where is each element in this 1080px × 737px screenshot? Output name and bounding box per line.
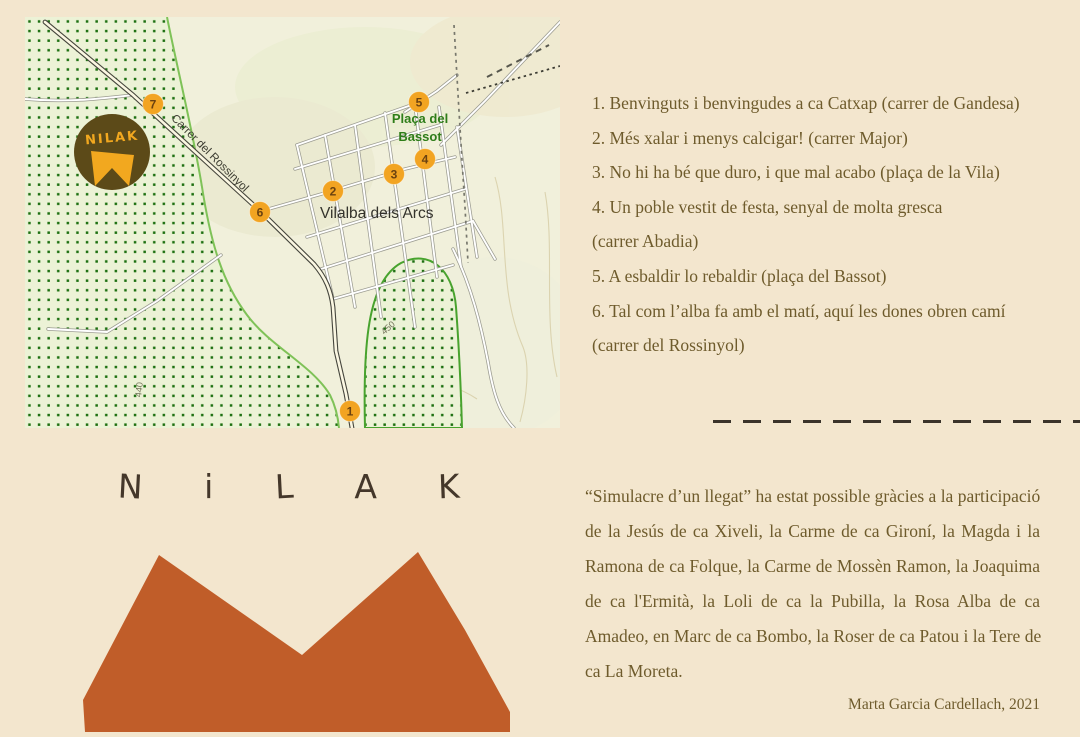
placa-del-bassot-label-line1: Plaça del xyxy=(392,111,448,126)
legend-line: 3. No hi ha bé que duro, i que mal acabo… xyxy=(592,155,1064,190)
map-marker-4: 4 xyxy=(415,149,436,170)
map-marker-1: 1 xyxy=(340,401,361,422)
map-marker-2: 2 xyxy=(323,181,344,202)
svg-text:2: 2 xyxy=(330,185,337,199)
credits-line: ca La Moreta. xyxy=(585,654,1040,689)
svg-text:6: 6 xyxy=(257,206,264,220)
credits-line: “Simulacre d’un llegat” ha estat possibl… xyxy=(585,479,1040,514)
credits-line: de la Jesús de ca Xiveli, la Carme de ca… xyxy=(585,514,1040,549)
mountain-icon xyxy=(83,552,510,732)
credits-line: Ramona de ca Folque, la Carme de Mossèn … xyxy=(585,549,1040,584)
contour-label-440: 440 xyxy=(133,382,145,398)
placa-del-bassot-label-line2: Bassot xyxy=(398,129,442,144)
legend-line: 1. Benvinguts i benvingudes a ca Catxap … xyxy=(592,86,1064,121)
village-map: Carrer del Rossinyol Plaça del Bassot Vi… xyxy=(25,17,560,428)
legend-line: 6. Tal com l’alba fa amb el matí, aquí l… xyxy=(592,294,1064,329)
legend-line: (carrer del Rossinyol) xyxy=(592,328,1064,363)
mountain-logo-shape xyxy=(83,552,510,732)
map-marker-6: 6 xyxy=(250,202,271,223)
credits-line: Amadeo, en Marc de ca Bombo, la Roser de… xyxy=(585,619,1040,654)
credits-paragraph: “Simulacre d’un llegat” ha estat possibl… xyxy=(585,479,1040,717)
wordmark-letter: i xyxy=(204,470,213,503)
wordmark-letter: K xyxy=(438,470,461,504)
legend-line: 2. Més xalar i menys calcigar! (carrer M… xyxy=(592,121,1064,156)
wordmark-letter: A xyxy=(354,470,377,503)
svg-text:1: 1 xyxy=(347,405,354,419)
legend-line: (carrer Abadia) xyxy=(592,224,1064,259)
credit-author: Marta Garcia Cardellach, 2021 xyxy=(585,693,1040,717)
town-name-label: Vilalba dels Arcs xyxy=(320,205,434,222)
credits-line: de ca l'Ermità, la Loli de ca la Pubilla… xyxy=(585,584,1040,619)
wordmark-letter: L xyxy=(274,470,294,504)
map-canvas: Carrer del Rossinyol Plaça del Bassot Vi… xyxy=(25,17,560,428)
dashed-separator xyxy=(713,420,1080,423)
map-marker-5: 5 xyxy=(409,92,430,113)
svg-text:5: 5 xyxy=(416,96,423,110)
nilak-wordmark: N i L A K xyxy=(118,455,460,503)
wordmark-letter: N xyxy=(117,469,143,503)
legend-line: 4. Un poble vestit de festa, senyal de m… xyxy=(592,190,1064,225)
legend-line: 5. A esbaldir lo rebaldir (plaça del Bas… xyxy=(592,259,1064,294)
nilak-logo: NILAK xyxy=(74,114,150,190)
svg-text:3: 3 xyxy=(391,168,398,182)
legend-list: 1. Benvinguts i benvingudes a ca Catxap … xyxy=(592,86,1064,363)
map-marker-3: 3 xyxy=(384,164,405,185)
svg-text:4: 4 xyxy=(422,153,429,167)
map-marker-7: 7 xyxy=(143,94,164,115)
svg-text:7: 7 xyxy=(150,98,157,112)
